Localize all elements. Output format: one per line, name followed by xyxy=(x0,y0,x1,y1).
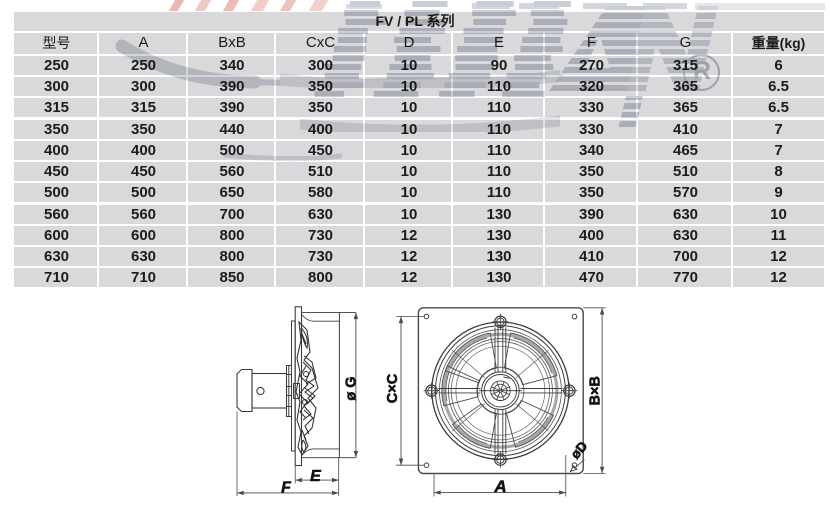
svg-text:C×C: C×C xyxy=(385,373,401,403)
svg-text:øD: øD xyxy=(568,438,591,462)
svg-text:B×B: B×B xyxy=(588,376,604,405)
svg-text:E: E xyxy=(310,468,322,485)
svg-text:ø G: ø G xyxy=(344,376,360,400)
svg-text:F: F xyxy=(281,480,292,497)
svg-text:A: A xyxy=(493,477,506,496)
